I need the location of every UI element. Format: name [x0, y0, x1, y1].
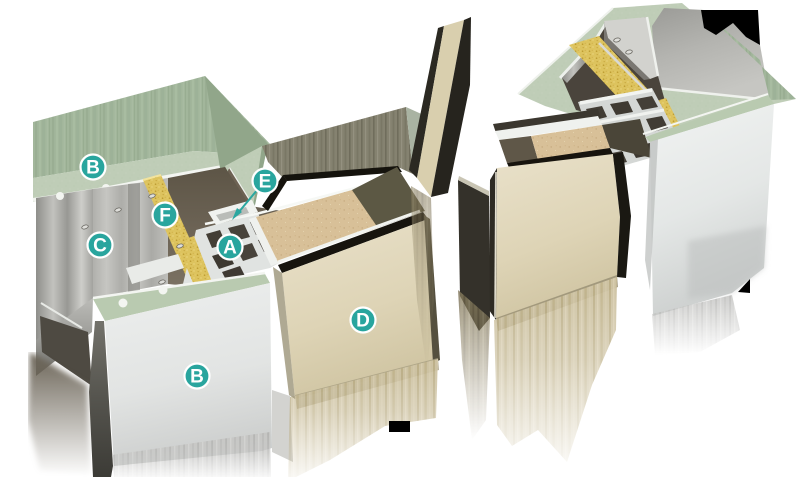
svg-text:E: E — [259, 172, 272, 193]
svg-text:D: D — [356, 311, 370, 332]
svg-text:C: C — [93, 236, 107, 257]
svg-text:B: B — [190, 367, 204, 388]
svg-text:A: A — [223, 238, 237, 259]
svg-text:F: F — [159, 206, 171, 227]
svg-text:B: B — [86, 158, 100, 179]
